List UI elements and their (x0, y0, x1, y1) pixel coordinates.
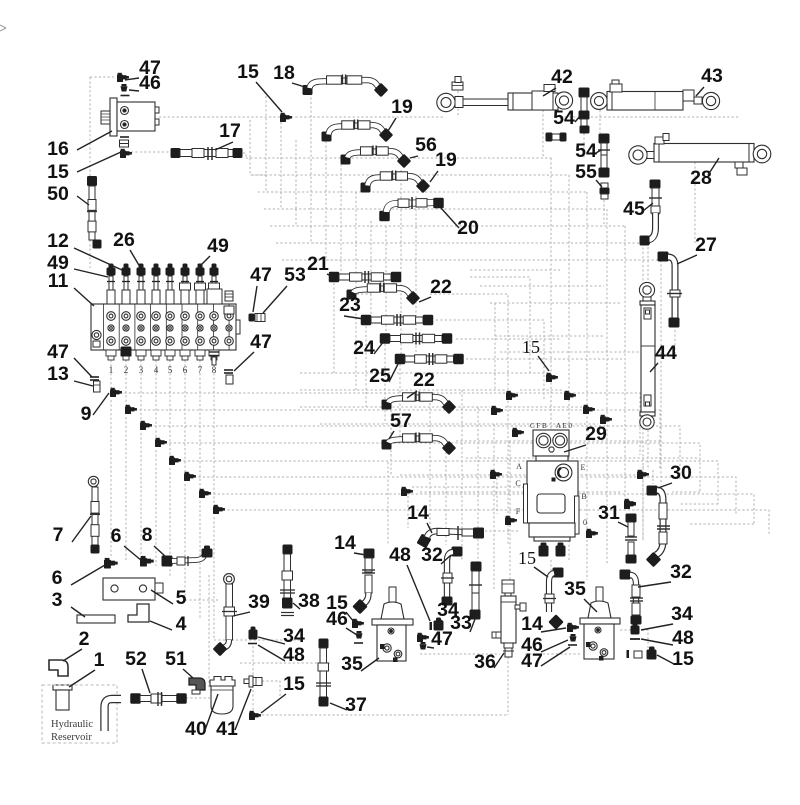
svg-text:7: 7 (198, 365, 203, 375)
svg-text:50: 50 (47, 183, 69, 205)
svg-text:27: 27 (695, 234, 717, 256)
svg-text:44: 44 (655, 342, 677, 364)
svg-text:28: 28 (690, 167, 712, 189)
svg-text:52: 52 (125, 648, 147, 670)
svg-text:5: 5 (168, 365, 173, 375)
svg-text:5: 5 (176, 587, 187, 609)
svg-text:46: 46 (326, 608, 348, 630)
svg-text:48: 48 (672, 627, 694, 649)
svg-text:22: 22 (430, 276, 452, 298)
svg-text:1: 1 (94, 649, 105, 671)
svg-text:Reservoir: Reservoir (51, 732, 92, 743)
svg-text:15: 15 (283, 673, 305, 695)
svg-text:2: 2 (124, 365, 129, 375)
svg-text:48: 48 (283, 644, 305, 666)
svg-text:8: 8 (142, 524, 153, 546)
svg-text:45: 45 (623, 198, 645, 220)
svg-text:32: 32 (421, 544, 443, 566)
svg-text:0: 0 (583, 518, 587, 527)
svg-text:4: 4 (154, 365, 159, 375)
svg-text:46: 46 (139, 72, 161, 94)
svg-text:C: C (515, 479, 520, 488)
svg-text:19: 19 (435, 149, 457, 171)
svg-text:E: E (581, 463, 586, 472)
svg-text:54: 54 (553, 107, 575, 129)
svg-text:47: 47 (250, 264, 272, 286)
svg-text:57: 57 (390, 410, 412, 432)
svg-text:15: 15 (518, 548, 536, 568)
svg-text:56: 56 (415, 134, 437, 156)
svg-text:25: 25 (369, 365, 391, 387)
svg-text:6: 6 (52, 567, 63, 589)
svg-text:43: 43 (701, 65, 723, 87)
svg-text:23: 23 (339, 294, 361, 316)
svg-text:47: 47 (431, 628, 453, 650)
svg-text:18: 18 (273, 62, 295, 84)
svg-text:15: 15 (237, 61, 259, 83)
svg-text:39: 39 (248, 591, 270, 613)
svg-text:15: 15 (47, 161, 69, 183)
svg-text:6: 6 (111, 525, 122, 547)
svg-text:15: 15 (672, 648, 694, 670)
svg-text:F: F (516, 507, 521, 516)
svg-text:20: 20 (457, 217, 479, 239)
svg-text:26: 26 (113, 229, 135, 251)
svg-text:3: 3 (139, 365, 144, 375)
svg-text:42: 42 (551, 66, 573, 88)
svg-text:6: 6 (183, 365, 188, 375)
svg-text:C F B: C F B (530, 422, 547, 430)
svg-text:A: A (516, 462, 522, 471)
svg-text:B: B (581, 492, 586, 501)
svg-text:29: 29 (585, 423, 607, 445)
svg-text:14: 14 (407, 502, 429, 524)
svg-text:1: 1 (109, 365, 114, 375)
svg-text:16: 16 (47, 138, 69, 160)
svg-text:4: 4 (176, 613, 187, 635)
svg-text:40: 40 (185, 718, 207, 740)
svg-text:48: 48 (389, 544, 411, 566)
svg-text:49: 49 (207, 235, 229, 257)
svg-text:19: 19 (391, 96, 413, 118)
svg-text:2: 2 (79, 628, 90, 650)
svg-text:53: 53 (284, 264, 306, 286)
svg-text:Hydraulic: Hydraulic (51, 719, 93, 730)
svg-text:34: 34 (671, 603, 693, 625)
svg-text:54: 54 (575, 140, 597, 162)
svg-text:35: 35 (564, 578, 586, 600)
svg-text:30: 30 (670, 462, 692, 484)
svg-text:37: 37 (345, 694, 367, 716)
svg-text:47: 47 (47, 341, 69, 363)
svg-text:33: 33 (450, 612, 472, 634)
svg-text:47: 47 (250, 331, 272, 353)
svg-text:38: 38 (298, 590, 320, 612)
svg-text:36: 36 (474, 651, 496, 673)
svg-text:3: 3 (52, 589, 63, 611)
svg-text:9: 9 (81, 403, 92, 425)
svg-text:14: 14 (521, 613, 543, 635)
svg-text:32: 32 (670, 561, 692, 583)
svg-text:12: 12 (47, 230, 69, 252)
svg-text:31: 31 (598, 502, 620, 524)
svg-text:7: 7 (53, 524, 64, 546)
svg-text:15: 15 (522, 337, 540, 357)
svg-text:51: 51 (165, 648, 187, 670)
svg-text:55: 55 (575, 161, 597, 183)
svg-text:21: 21 (307, 253, 329, 275)
svg-text:47: 47 (521, 650, 543, 672)
svg-text:14: 14 (334, 532, 356, 554)
svg-text:A E 0: A E 0 (556, 422, 572, 430)
svg-text:22: 22 (413, 369, 435, 391)
svg-text:35: 35 (341, 653, 363, 675)
svg-text:13: 13 (47, 363, 69, 385)
svg-text:8: 8 (212, 365, 217, 375)
svg-text:11: 11 (48, 270, 69, 292)
svg-text:17: 17 (219, 120, 241, 142)
svg-text:24: 24 (353, 337, 375, 359)
